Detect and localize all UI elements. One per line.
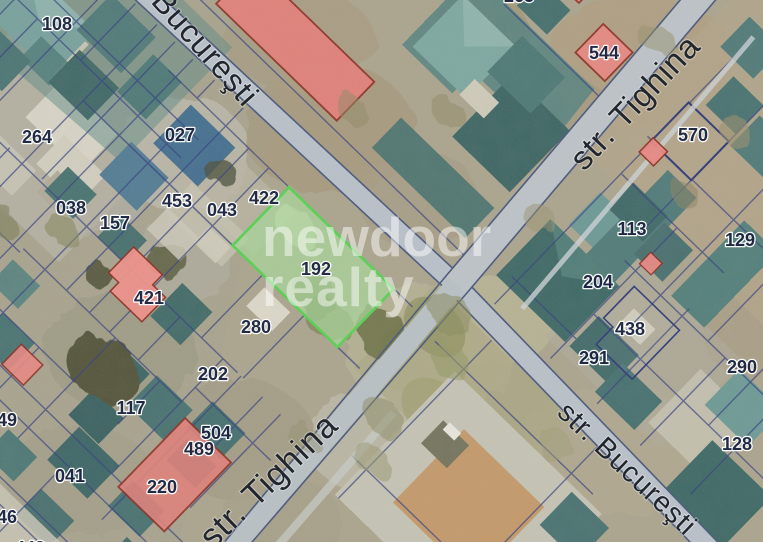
svg-text:544: 544: [589, 43, 619, 63]
svg-text:117: 117: [116, 398, 145, 418]
svg-text:043: 043: [207, 200, 237, 220]
svg-text:291: 291: [579, 348, 609, 368]
svg-text:421: 421: [134, 288, 164, 308]
svg-text:049: 049: [0, 410, 17, 430]
svg-text:108: 108: [42, 14, 72, 34]
svg-text:570: 570: [678, 125, 708, 145]
svg-text:202: 202: [198, 364, 228, 384]
svg-text:290: 290: [727, 357, 757, 377]
svg-text:128: 128: [722, 434, 752, 454]
svg-text:264: 264: [22, 127, 52, 147]
svg-text:realty: realty: [262, 256, 415, 318]
svg-text:438: 438: [615, 319, 645, 339]
svg-text:027: 027: [165, 125, 195, 145]
svg-text:041: 041: [55, 466, 85, 486]
svg-text:489: 489: [184, 439, 214, 459]
svg-text:204: 204: [583, 272, 613, 292]
svg-text:220: 220: [147, 477, 177, 497]
svg-text:280: 280: [241, 317, 271, 337]
svg-text:113: 113: [617, 219, 646, 239]
svg-text:453: 453: [162, 191, 192, 211]
svg-text:265: 265: [504, 0, 534, 6]
svg-text:129: 129: [725, 230, 755, 250]
svg-text:157: 157: [100, 213, 130, 233]
svg-text:046: 046: [0, 507, 17, 527]
svg-text:448: 448: [15, 538, 45, 542]
svg-text:038: 038: [56, 198, 86, 218]
svg-text:422: 422: [249, 188, 279, 208]
